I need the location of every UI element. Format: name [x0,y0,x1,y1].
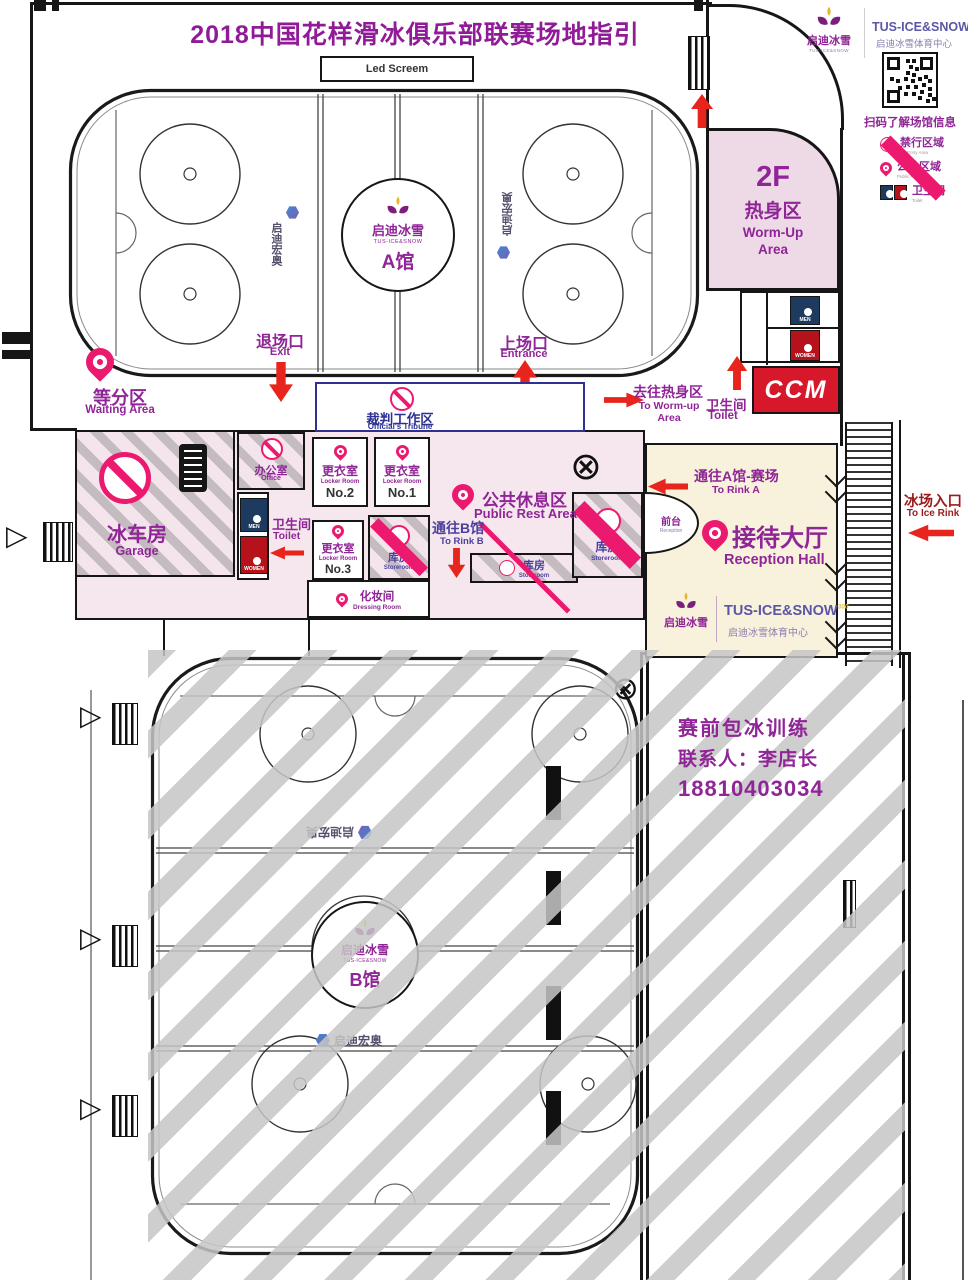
brand-center-name: 启迪冰雪体育中心 [876,36,952,50]
legend-no-entry-cn: 禁行区域 [900,134,944,150]
qr-caption: 扫码了解场馆信息 [850,114,968,130]
to-rink-b-label-cn: 通往B馆 [432,518,484,538]
pin-icon [333,591,350,608]
desk-label-cn: 前台 [661,513,681,528]
locker1-label-cn: 更衣室 [384,462,420,479]
wall-divider [766,293,768,365]
page-title: 2018中国花样滑冰俱乐部联赛场地指引 [150,16,680,50]
ccm-logo: CCM [752,366,840,414]
floor-2f-label: 2F [756,161,790,194]
locker-room-1: 更衣室 Locker Room No.1 [374,437,430,507]
no-entry-icon [261,438,283,460]
women-wc-icon [894,185,907,200]
qr-code [882,52,938,108]
to-rink-a-label-en: To Rink A [712,484,760,496]
tulip-logo-icon [674,592,698,614]
qidi-hongao-hexagon-icon [358,826,372,840]
men-wc-icon [880,185,893,200]
wall-divider [766,327,838,329]
wall-tick [52,0,59,11]
officials-tribune-box: 裁判工作区 Official's Tribune [315,382,585,432]
wall-hatched-area-left [640,652,643,1280]
wall-outer-right [962,700,964,1280]
tulip-logo-icon [353,919,377,941]
wall-left [30,2,33,430]
storeroom-2: 库房 Storeroom [470,553,578,583]
legend-toilet-en: Toilet [912,198,923,203]
notice-line-1: 赛前包冰训练 [678,712,810,741]
to-warmup-label-cn: 去往热身区 [618,382,718,402]
brand-center-name: 启迪冰雪体育中心 [728,624,808,639]
locker-room-3: 更衣室 Locker Room No.3 [312,520,364,580]
tulip-logo-icon [385,196,411,220]
dressing-label-cn: 化妆间 [360,588,395,604]
header-divider [864,8,865,58]
section-marker-icon: ▷ [6,522,28,550]
toilet-mid-label-en: Toilet [273,530,300,542]
garage-label-en: Garage [77,544,197,558]
men-wc-icon: MEN [790,296,820,325]
wc-icon [880,185,907,200]
wall-hatch-block [112,1095,138,1137]
notice-phone: 18810403034 [678,776,824,802]
brand-name-en: TUS-ICE&SNOW [343,958,387,964]
locker2-number: No.2 [326,485,354,500]
wall-2f-right [840,128,843,446]
wall-top [30,2,712,5]
zamboni-icon [179,444,207,492]
wall-hatch-block [688,36,710,90]
desk-label-en: Reception [660,528,683,534]
qidi-hongao-hexagon-icon [316,1034,330,1048]
wall-stub [308,620,310,656]
reception-hall-label-cn: 接待大厅 [732,518,828,553]
legend: 禁行区域 No Entry Area 公共区域 Public Area 卫生间 … [880,132,945,204]
ice-entrance-arrow-icon [908,524,954,542]
no-entry-icon [99,452,151,504]
no-entry-icon [388,525,410,547]
garage-label-cn: 冰车房 [77,518,197,547]
rink-b-watermark-bottom: 启迪宏奥 [316,1032,382,1049]
locker-room-2: 更衣室 Locker Room No.2 [312,437,368,507]
no-entry-icon [499,560,515,576]
no-entry-icon [880,137,895,152]
wall-tick [694,0,703,11]
hall-b-label: B馆 [350,966,381,992]
office-room: 办公室 Office [237,432,305,490]
exit-label-en: Exit [240,346,320,358]
warmup-label-en: Worm-Up Area [738,225,808,257]
wall-hatch-block [112,925,138,967]
office-label-en: Office [239,475,303,482]
toilet-2f-label-en: Toilet [708,410,738,422]
brand-superscript: 300 [838,604,849,611]
wall-stub [163,620,165,656]
dressing-room: 化妆间 Dressing Room [307,580,430,618]
wall-corridor [899,420,901,668]
legend-item-no-entry: 禁行区域 No Entry Area [880,132,945,156]
qr-finder [887,90,900,103]
wall-connector [30,428,77,431]
no-entry-icon [595,508,621,534]
brand-name-tiny: TUS-ICE&SNOW [809,48,849,53]
locker3-label-cn: 更衣室 [322,540,355,556]
wall-hatched-area-right [902,652,905,1280]
men-label: MEN [799,317,810,324]
wall-hatch-block [843,880,856,928]
locker2-label-cn: 更衣室 [322,462,358,479]
reception-brand-left: 启迪冰雪 [660,592,712,630]
pin-icon [393,442,411,460]
wall-hatched-area-left2 [646,652,649,1280]
pin-icon [330,522,347,539]
reception-hall-label-en: Reception Hall [724,552,825,568]
entrance-label-en: Entrance [482,348,566,360]
rink-a-center-logo: 启迪冰雪 TUS-ICE&SNOW A馆 [341,178,455,292]
tulip-logo-icon [815,6,843,32]
rink-b-center-logo: 启迪冰雪 TUS-ICE&SNOW B馆 [311,901,419,1009]
to-warmup-label-en: To Worm-up Area [636,400,702,424]
brand-divider [716,596,717,642]
pin-icon [331,442,349,460]
warmup-label-cn: 热身区 [744,196,801,223]
wall-hatched-area-right2 [908,652,911,1280]
brand-name-en: TUS-ICE&SNOW [724,603,838,619]
qr-noise [906,59,910,63]
brand-name-en: TUS-ICE&SNOW [374,239,423,245]
wall-door-block [2,350,30,359]
rest-area-label-en: Public Rest Area [474,506,577,521]
warmup-area-2f: 2F 热身区 Worm-Up Area [706,128,840,291]
officials-label-en: Official's Tribune [325,422,475,431]
women-label: WOMEN [244,566,264,573]
rink-a-watermark: 启迪宏奥 [268,222,284,266]
rink-a-watermark: 启迪宏奥 [500,192,516,236]
brand-name: 启迪冰雪 [341,941,389,958]
header-brand-right: TUS-ICE&SNOW300 [872,18,968,36]
storeroom-1: 库房 Storeroom [368,515,430,580]
section-marker-icon: ▷ [80,702,102,730]
rink-b-watermark-top: 启迪宏奥 [306,824,372,841]
brand-name-en: TUS-ICE&SNOW [872,20,968,34]
garage-room: 冰车房 Garage [77,432,235,577]
ice-entrance-label-en: To Ice Rink [898,508,968,519]
notice-line-2: 联系人：李店长 [678,744,818,771]
header-brand-left: 启迪冰雪 TUS-ICE&SNOW [800,6,858,53]
men-wc-icon: MEN [240,498,268,532]
women-wc-icon: WOMEN [790,330,820,361]
locker3-number: No.3 [325,562,351,576]
qr-finder [887,57,900,70]
wall-tick [34,0,46,11]
brand-name: 启迪冰雪 [372,220,424,239]
waiting-area-label-en: Waiting Area [55,404,185,416]
men-label: MEN [248,524,259,531]
qr-finder [920,57,933,70]
wall-hatch-block [43,522,73,562]
venue-floorplan: 2018中国花样滑冰俱乐部联赛场地指引 ▷ Led Screem [0,0,968,1280]
women-label: WOMEN [795,353,815,360]
wall-outer-left [90,690,92,1280]
section-marker-icon: ▷ [80,924,102,952]
dressing-label-en: Dressing Room [353,604,401,611]
to-rink-b-label-en: To Rink B [440,536,484,547]
brand-name: 启迪冰雪 [664,614,708,630]
stairs-strip [845,422,893,666]
rink-b-watermark: 启迪宏奥 [306,824,354,841]
circled-x-symbol: ⊗ [612,672,639,704]
rink-b-watermark: 启迪宏奥 [334,1032,382,1049]
wall-hatch-block [112,703,138,745]
storeroom-3: 库房 Storeroom [572,492,643,578]
locker1-number: No.1 [388,485,416,500]
circled-x-symbol: ⊗ [570,448,602,486]
wall-door-block [2,332,30,344]
hall-a-label: A馆 [382,247,415,274]
led-screen: Led Screem [320,56,474,82]
to-rink-a-label-cn: 通往A馆-赛场 [694,466,779,486]
brand-name: 启迪冰雪 [807,32,851,48]
women-wc-icon: WOMEN [240,536,268,574]
pin-icon [878,160,895,177]
section-marker-icon: ▷ [80,1094,102,1122]
